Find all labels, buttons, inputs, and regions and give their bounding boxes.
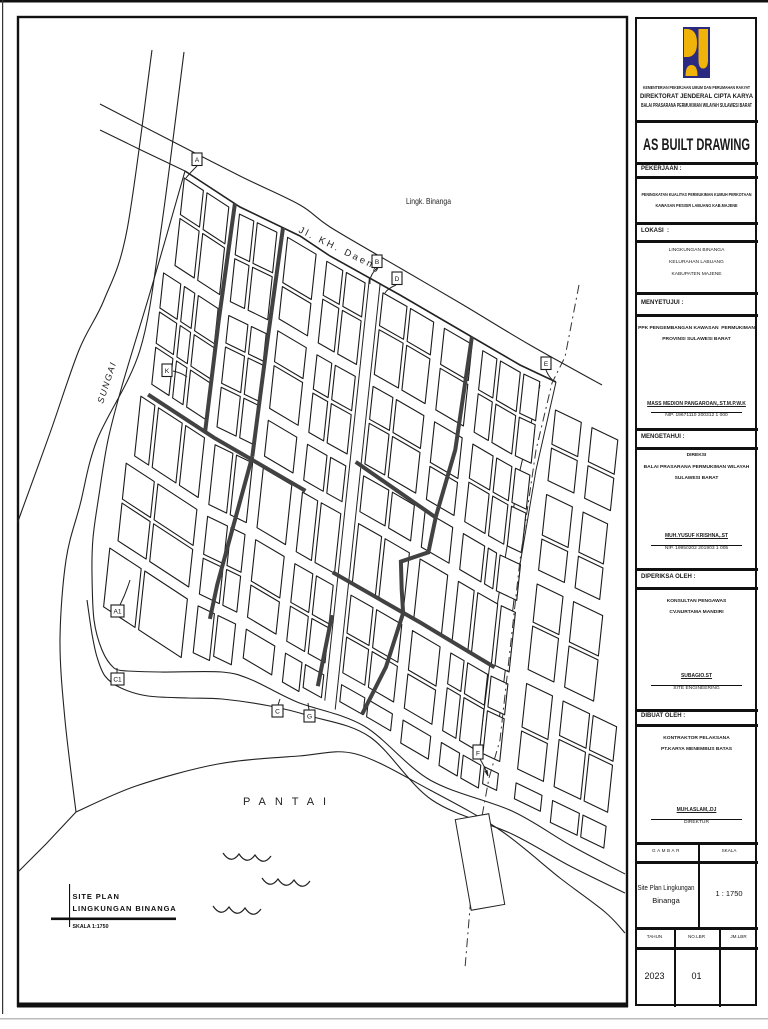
- svg-text:G: G: [307, 714, 312, 721]
- svg-text:B: B: [375, 259, 379, 266]
- svg-text:Binanga: Binanga: [652, 896, 680, 905]
- svg-text:PANTAI: PANTAI: [243, 796, 335, 808]
- svg-text:F: F: [476, 751, 480, 758]
- svg-text:K: K: [165, 368, 170, 375]
- svg-text:Lingk. Binanga: Lingk. Binanga: [406, 196, 451, 206]
- svg-text:LINGKUNGAN BINANGA: LINGKUNGAN BINANGA: [73, 904, 177, 913]
- svg-text:D: D: [395, 276, 400, 283]
- svg-text:A: A: [195, 157, 200, 164]
- svg-text:A1: A1: [114, 609, 122, 616]
- svg-text:AS BUILT DRAWING: AS BUILT DRAWING: [643, 136, 750, 154]
- svg-text:Site Plan Lingkungan: Site Plan Lingkungan: [638, 883, 695, 892]
- svg-text:SITE PLAN: SITE PLAN: [73, 892, 120, 901]
- svg-text:BALAI PRASARANA PERMUKIMAN WIL: BALAI PRASARANA PERMUKIMAN WILAYAH SULAW…: [641, 103, 752, 109]
- svg-text:C1: C1: [113, 677, 122, 684]
- svg-text:KAWASAN PESISIR LABUANG KAB.MA: KAWASAN PESISIR LABUANG KAB.MAJENE: [656, 203, 739, 209]
- svg-text:PENINGKATAN KUALITAS PERMUKIMA: PENINGKATAN KUALITAS PERMUKIMAN KUMUH PE…: [642, 192, 752, 198]
- svg-text:SKALA 1:1750: SKALA 1:1750: [73, 924, 109, 930]
- svg-text:C: C: [275, 709, 280, 716]
- svg-text:E: E: [544, 361, 549, 368]
